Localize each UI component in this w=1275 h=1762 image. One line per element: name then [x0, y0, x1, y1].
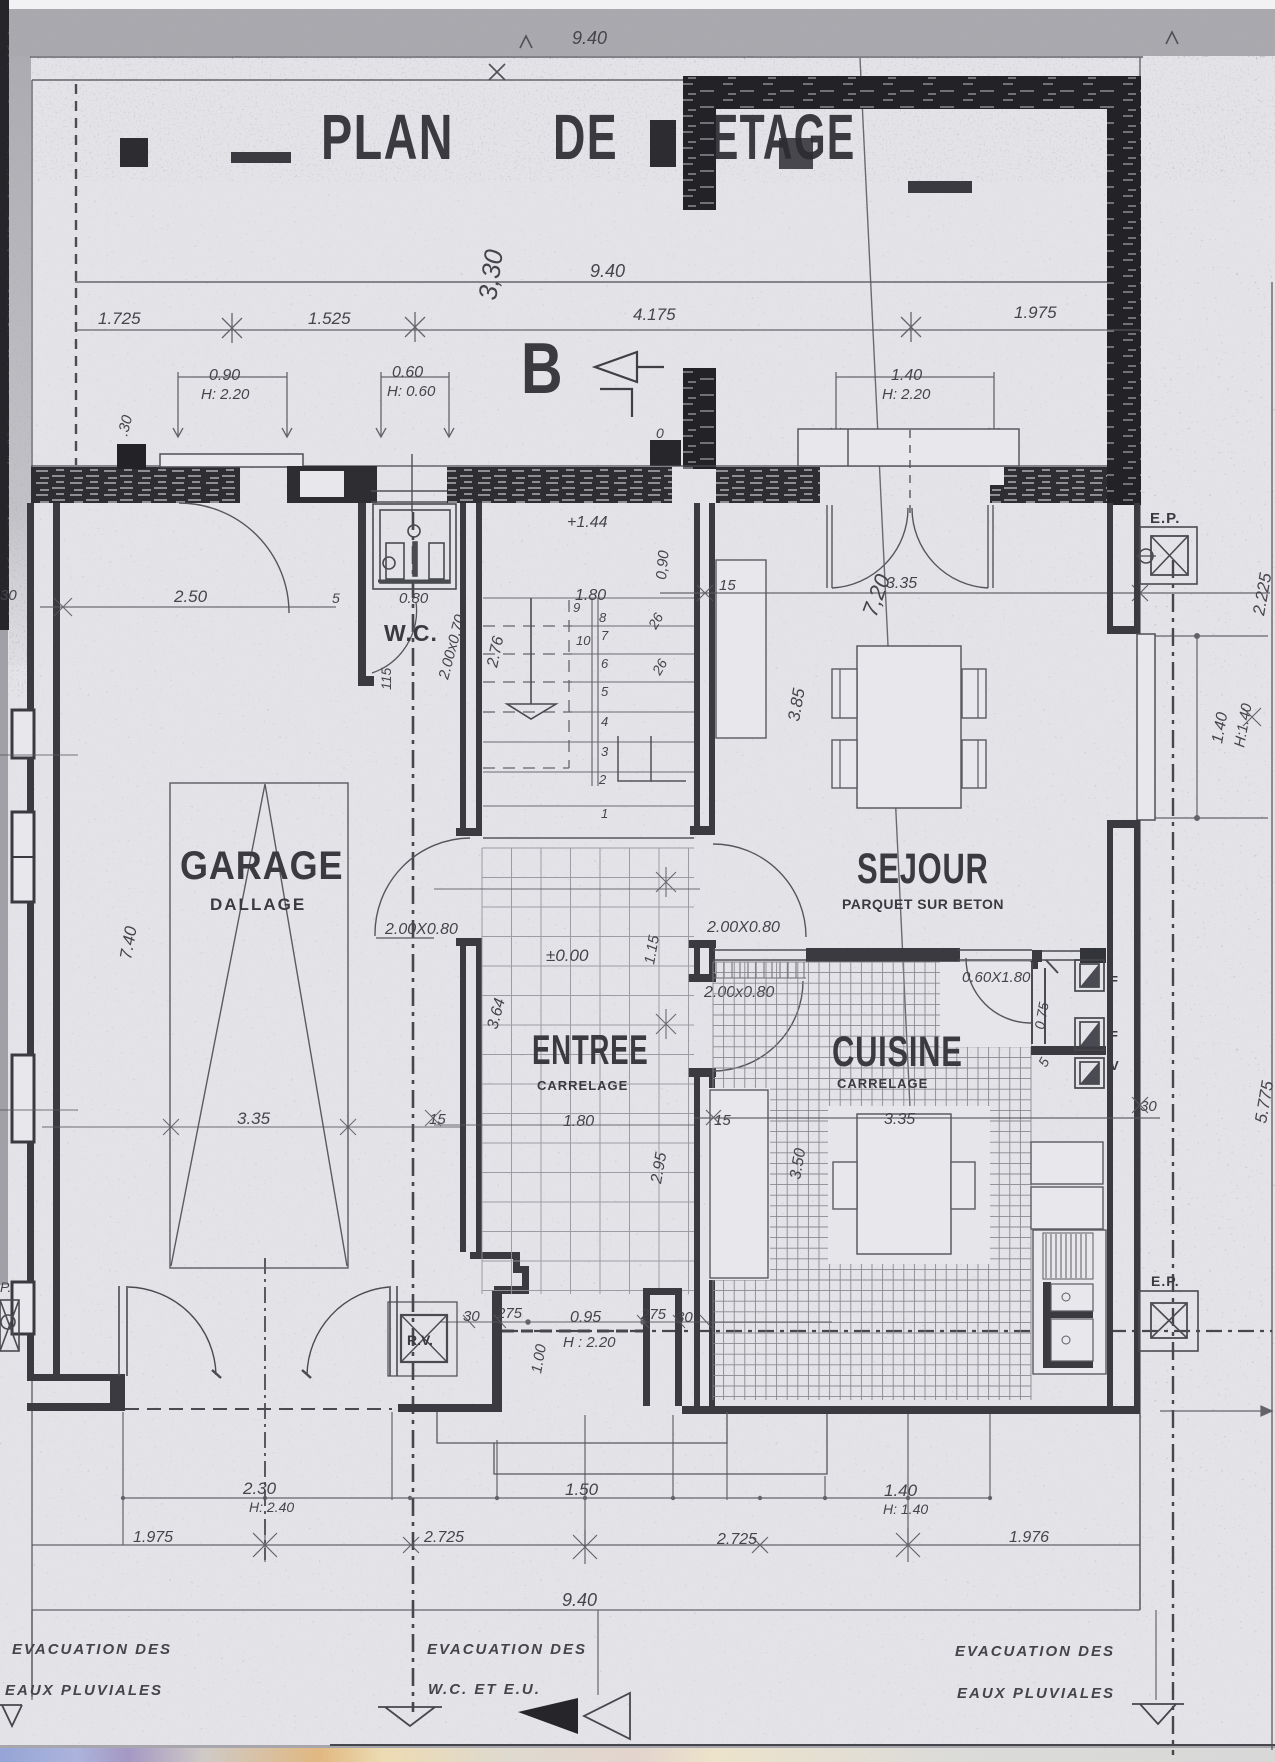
svg-text:115: 115: [378, 667, 394, 690]
svg-text:2.00X0.80: 2.00X0.80: [706, 919, 780, 936]
svg-text:9.40: 9.40: [572, 28, 607, 48]
svg-text:30: 30: [1140, 1098, 1157, 1115]
svg-text:+1.44: +1.44: [567, 514, 608, 531]
svg-text:0,90: 0,90: [653, 549, 673, 580]
svg-text:1.50: 1.50: [565, 1480, 599, 1499]
svg-text:9.40: 9.40: [590, 261, 625, 281]
svg-text:1.40: 1.40: [884, 1481, 918, 1500]
svg-text:0.90: 0.90: [209, 367, 240, 384]
svg-text:SEJOUR: SEJOUR: [857, 844, 989, 892]
svg-text:0.80: 0.80: [399, 590, 429, 607]
svg-text:EVACUATION DES: EVACUATION DES: [427, 1641, 587, 1658]
svg-text:EAUX PLUVIALES: EAUX PLUVIALES: [957, 1685, 1115, 1702]
svg-text:1.975: 1.975: [133, 1529, 173, 1546]
svg-text:6: 6: [601, 656, 609, 671]
svg-text:3.35: 3.35: [237, 1109, 271, 1128]
svg-text:B: B: [521, 328, 563, 409]
svg-text:30: 30: [676, 1309, 693, 1326]
svg-text:5: 5: [332, 590, 340, 606]
svg-text:30: 30: [463, 1308, 480, 1325]
svg-text:1.40: 1.40: [891, 367, 922, 384]
svg-text:H: 2.20: H: 2.20: [882, 386, 931, 403]
svg-text:1.725: 1.725: [98, 309, 141, 328]
svg-text:3: 3: [601, 744, 609, 759]
svg-text:EAUX PLUVIALES: EAUX PLUVIALES: [5, 1682, 163, 1699]
svg-text:1.976: 1.976: [1009, 1529, 1049, 1546]
svg-text:2.00X0.80: 2.00X0.80: [384, 921, 458, 938]
svg-text:1: 1: [601, 806, 608, 821]
svg-text:0.60: 0.60: [392, 364, 423, 381]
svg-text:1.80: 1.80: [575, 587, 606, 604]
svg-text:15: 15: [719, 577, 736, 594]
svg-text:0.95: 0.95: [570, 1309, 601, 1326]
svg-text:F: F: [1110, 1028, 1118, 1043]
svg-text:0.60X1.80: 0.60X1.80: [962, 969, 1031, 986]
svg-text:±0.00: ±0.00: [546, 946, 589, 965]
svg-text:3.35: 3.35: [884, 1111, 915, 1128]
svg-text:W.C.: W.C.: [384, 620, 438, 646]
svg-text:F: F: [1110, 973, 1118, 988]
svg-text:275: 275: [640, 1306, 667, 1323]
svg-text:H : 2.20: H : 2.20: [563, 1334, 616, 1351]
svg-text:2: 2: [598, 772, 607, 787]
svg-text:DE: DE: [553, 101, 618, 173]
svg-text:2.725: 2.725: [423, 1529, 464, 1546]
svg-text:E.P.: E.P.: [1151, 1273, 1180, 1289]
svg-text:P.: P.: [0, 1279, 11, 1295]
svg-text:2.725: 2.725: [716, 1531, 757, 1548]
svg-text:DALLAGE: DALLAGE: [210, 895, 306, 914]
svg-text:ENTREE: ENTREE: [532, 1026, 648, 1073]
svg-text:1.975: 1.975: [1014, 303, 1057, 322]
svg-text:R.V.: R.V.: [407, 1332, 433, 1348]
svg-text:8: 8: [599, 610, 607, 625]
svg-text:1.80: 1.80: [563, 1113, 594, 1130]
svg-text:EVACUATION DES: EVACUATION DES: [12, 1641, 172, 1658]
svg-text:W.C. ET E.U.: W.C. ET E.U.: [428, 1681, 541, 1698]
svg-text:9.40: 9.40: [562, 1590, 597, 1610]
svg-text:5: 5: [601, 684, 609, 699]
svg-text:PARQUET SUR BETON: PARQUET SUR BETON: [842, 896, 1004, 912]
svg-text:30: 30: [0, 587, 17, 604]
svg-text:E.P.: E.P.: [1150, 510, 1180, 527]
svg-text:4: 4: [601, 714, 608, 729]
svg-text:2.00x0.80: 2.00x0.80: [703, 984, 774, 1001]
svg-text:H: 2.40: H: 2.40: [249, 1499, 294, 1515]
svg-text:2.50: 2.50: [173, 587, 208, 606]
svg-text:0: 0: [656, 425, 664, 441]
svg-text:CUISINE: CUISINE: [832, 1027, 963, 1075]
svg-text:1.525: 1.525: [308, 309, 351, 328]
svg-text:V: V: [1110, 1058, 1119, 1073]
svg-text:2.30: 2.30: [242, 1479, 277, 1498]
svg-text:H: 2.20: H: 2.20: [201, 386, 250, 403]
svg-text:CARRELAGE: CARRELAGE: [837, 1076, 928, 1091]
svg-text:H: 1.40: H: 1.40: [883, 1501, 928, 1517]
svg-text:CARRELAGE: CARRELAGE: [537, 1078, 628, 1093]
svg-text:GARAGE: GARAGE: [180, 844, 343, 888]
svg-text:7: 7: [601, 628, 609, 643]
svg-text:PLAN: PLAN: [321, 101, 454, 173]
svg-text:EVACUATION DES: EVACUATION DES: [955, 1643, 1115, 1660]
svg-text:10: 10: [576, 633, 591, 648]
svg-text:275: 275: [496, 1305, 523, 1322]
svg-text:4.175: 4.175: [633, 305, 676, 324]
svg-text:H: 0.60: H: 0.60: [387, 383, 436, 400]
